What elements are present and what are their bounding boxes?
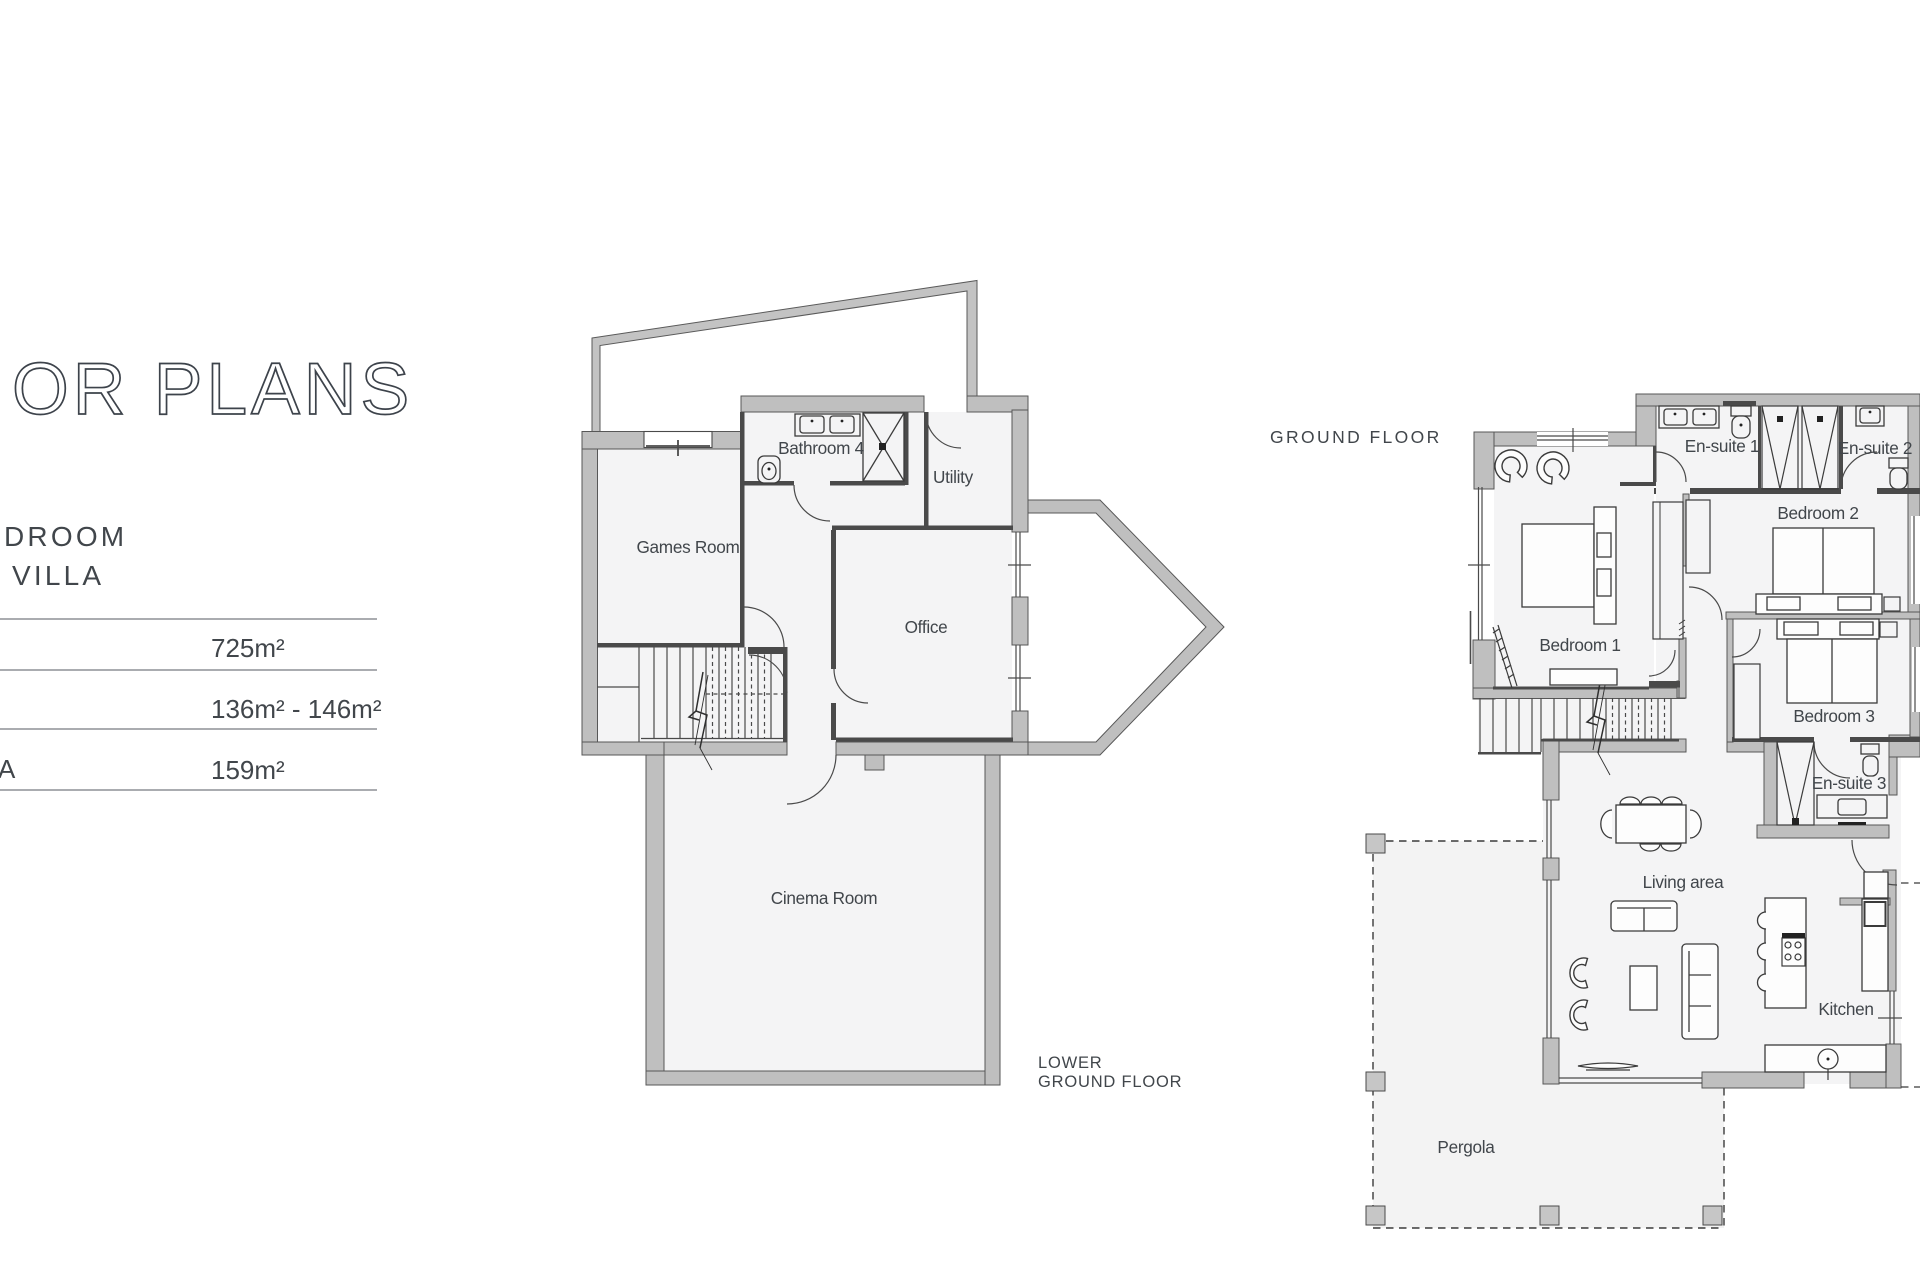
svg-text:Bedroom 1: Bedroom 1 <box>1539 635 1620 655</box>
svg-text:A: A <box>0 754 16 784</box>
svg-text:Bedroom 2: Bedroom 2 <box>1777 503 1858 523</box>
svg-text:LOWER: LOWER <box>1038 1054 1103 1072</box>
svg-text:725m²: 725m² <box>211 633 285 663</box>
svg-text:VILLA: VILLA <box>12 560 104 591</box>
svg-text:DROOM: DROOM <box>4 521 127 552</box>
svg-text:OR PLANS: OR PLANS <box>12 349 413 430</box>
svg-text:GROUND FLOOR: GROUND FLOOR <box>1270 427 1442 447</box>
svg-text:En-suite 2: En-suite 2 <box>1838 438 1912 458</box>
svg-text:159m²: 159m² <box>211 755 285 785</box>
svg-text:Bedroom 3: Bedroom 3 <box>1793 706 1874 726</box>
svg-text:Games Room: Games Room <box>636 537 739 557</box>
svg-text:GROUND FLOOR: GROUND FLOOR <box>1038 1073 1182 1091</box>
svg-text:Pergola: Pergola <box>1437 1137 1495 1157</box>
svg-text:136m² - 146m²: 136m² - 146m² <box>211 694 382 724</box>
svg-text:Cinema Room: Cinema Room <box>771 888 878 908</box>
svg-text:En-suite 3: En-suite 3 <box>1812 773 1886 793</box>
svg-text:Kitchen: Kitchen <box>1818 999 1873 1019</box>
svg-text:Utility: Utility <box>933 467 974 487</box>
svg-text:Bathroom 4: Bathroom 4 <box>778 438 865 458</box>
svg-text:En-suite 1: En-suite 1 <box>1685 436 1759 456</box>
svg-text:Living area: Living area <box>1643 872 1725 892</box>
svg-text:Office: Office <box>905 617 948 637</box>
